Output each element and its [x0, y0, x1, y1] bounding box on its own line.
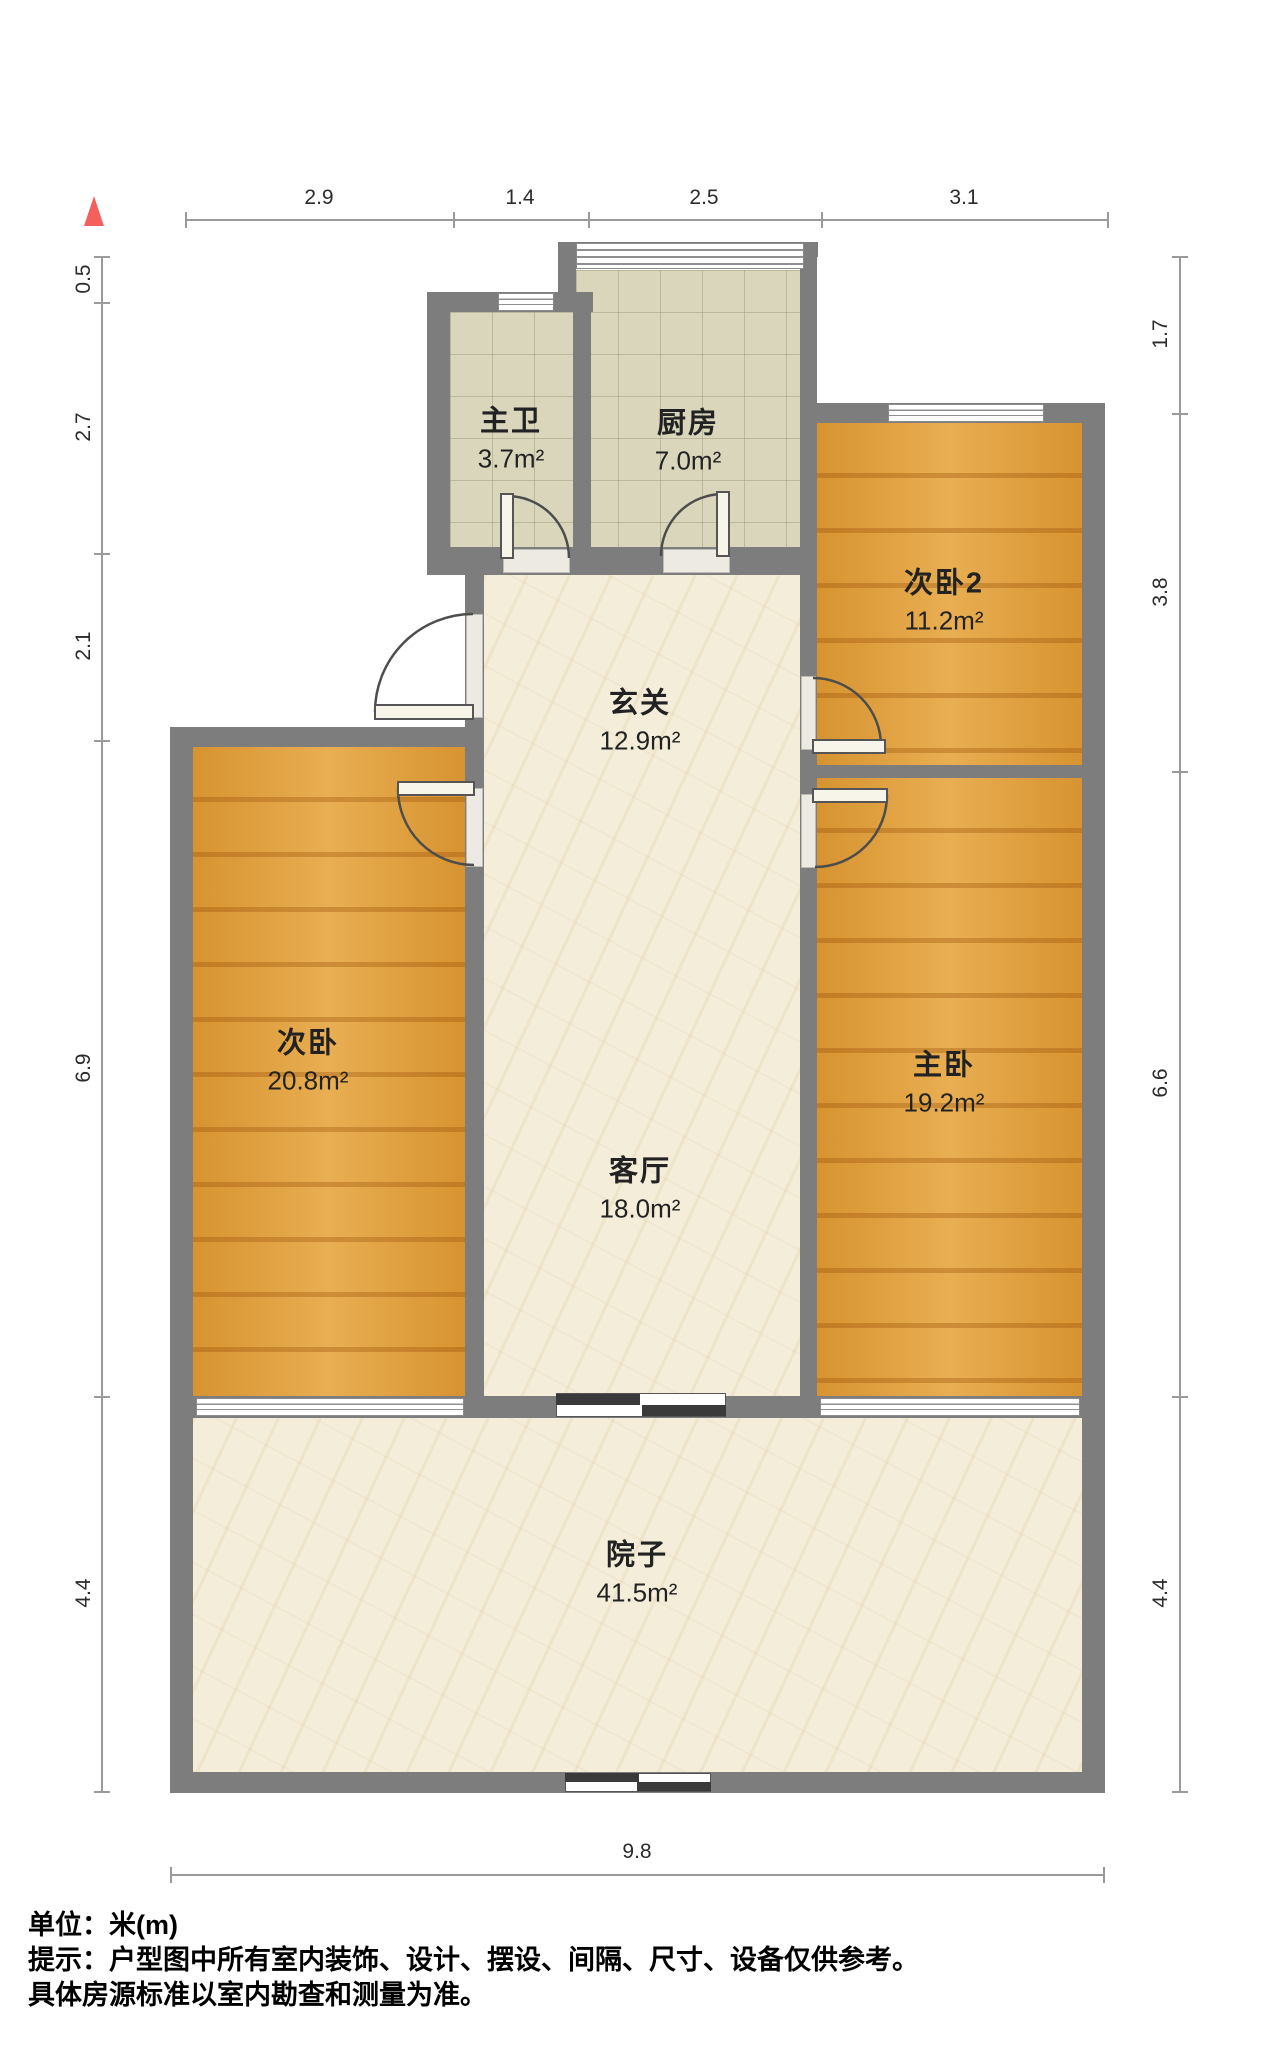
dim-tick — [1172, 256, 1188, 258]
dim-tick — [1172, 1791, 1188, 1793]
dim-line-top — [185, 219, 1109, 221]
room-label-bedroom: 次卧 20.8m² — [268, 1020, 349, 1097]
room-name: 次卧2 — [904, 560, 984, 602]
room-area: 20.8m² — [268, 1066, 349, 1097]
kitchen-bay-window — [576, 243, 804, 269]
dim-line-right — [1179, 256, 1181, 1793]
dim-tick — [821, 212, 823, 228]
courtyard-gate-panel — [565, 1773, 639, 1782]
dim-value-bottom: 9.8 — [622, 1840, 651, 1864]
entrance-door-opening — [466, 614, 483, 718]
dim-tick — [94, 256, 110, 258]
dim-tick — [185, 212, 187, 228]
dim-value-right: 6.6 — [1149, 1068, 1173, 1097]
dim-value-right: 3.8 — [1149, 577, 1173, 606]
wall-bath-kitchen — [573, 292, 591, 575]
dim-value-top: 1.4 — [505, 186, 534, 210]
dim-tick — [94, 740, 110, 742]
dim-value-left: 2.7 — [72, 412, 96, 441]
room-name: 院子 — [597, 1532, 678, 1574]
dim-tick — [1103, 1867, 1105, 1883]
bedroom-door-opening — [466, 788, 483, 867]
dim-tick — [1172, 413, 1188, 415]
kitchen-door-opening — [663, 549, 730, 573]
bedroom2-door-opening — [801, 676, 816, 750]
room-label-kitchen: 厨房 7.0m² — [655, 400, 721, 477]
dim-tick — [94, 1791, 110, 1793]
wall-bath-left — [427, 292, 450, 575]
master-door-opening — [801, 794, 816, 868]
dim-line-left — [101, 256, 103, 1793]
dim-tick — [94, 302, 110, 304]
dim-value-top: 2.5 — [689, 186, 718, 210]
dim-value-top: 2.9 — [304, 186, 333, 210]
wall-east-outer — [1082, 403, 1105, 1793]
dim-line-bottom — [170, 1874, 1105, 1876]
room-name: 主卫 — [478, 398, 544, 440]
room-area: 19.2m² — [904, 1088, 985, 1119]
room-label-hallway: 玄关 12.9m² — [600, 680, 681, 757]
room-name: 主卧 — [904, 1042, 985, 1084]
floor-plan-page: 主卫 3.7m² 厨房 7.0m² 次卧2 11.2m² 玄关 12.9m² 次… — [0, 0, 1275, 2048]
wall-bedroom2-master — [817, 765, 1082, 778]
room-label-courtyard: 院子 41.5m² — [597, 1532, 678, 1609]
wall-bedroom-top — [170, 727, 484, 747]
dim-value-left: 2.1 — [72, 631, 96, 660]
bath-window — [498, 293, 554, 311]
room-label-master-bath: 主卫 3.7m² — [478, 398, 544, 475]
dim-tick — [588, 212, 590, 228]
footer-tip-line1: 提示：户型图中所有室内装饰、设计、摆设、间隔、尺寸、设备仅供参考。 — [28, 1943, 919, 1978]
bedroom2-window — [888, 404, 1044, 422]
wall-bath-kitchen-bottom — [427, 547, 817, 575]
dim-tick — [453, 212, 455, 228]
room-name: 次卧 — [268, 1020, 349, 1062]
dim-tick — [170, 1867, 172, 1883]
bedroom-south-window — [196, 1398, 464, 1416]
dim-value-left: 0.5 — [72, 264, 96, 293]
room-area: 3.7m² — [478, 444, 544, 475]
courtyard-gate-panel — [637, 1782, 711, 1791]
dim-value-top: 3.1 — [949, 186, 978, 210]
dim-tick — [1172, 771, 1188, 773]
dim-value-right: 4.4 — [1149, 1578, 1173, 1607]
room-name: 客厅 — [600, 1148, 681, 1190]
bath-door-opening — [503, 549, 570, 573]
room-label-living-room: 客厅 18.0m² — [600, 1148, 681, 1225]
room-label-master-bedroom: 主卧 19.2m² — [904, 1042, 985, 1119]
dim-value-right: 1.7 — [1149, 319, 1173, 348]
living-sliding-door-panel — [556, 1394, 640, 1405]
living-sliding-door-panel — [642, 1405, 726, 1416]
room-area: 12.9m² — [600, 726, 681, 757]
dim-tick — [1107, 212, 1109, 228]
room-area: 7.0m² — [655, 446, 721, 477]
room-name: 玄关 — [600, 680, 681, 722]
master-south-window — [820, 1398, 1080, 1416]
room-area: 41.5m² — [597, 1578, 678, 1609]
footer-notes: 单位：米(m) 提示：户型图中所有室内装饰、设计、摆设、间隔、尺寸、设备仅供参考… — [28, 1908, 919, 2013]
dim-tick — [94, 1396, 110, 1398]
north-arrow-icon — [84, 196, 104, 226]
room-area: 18.0m² — [600, 1194, 681, 1225]
room-label-bedroom2: 次卧2 11.2m² — [904, 560, 984, 637]
wall-west-outer — [170, 727, 193, 1793]
footer-tip-line2: 具体房源标准以室内勘查和测量为准。 — [28, 1978, 919, 2013]
room-name: 厨房 — [655, 400, 721, 442]
footer-unit-line: 单位：米(m) — [28, 1908, 919, 1943]
dim-tick — [94, 553, 110, 555]
dim-tick — [1172, 1396, 1188, 1398]
dim-value-left: 6.9 — [72, 1053, 96, 1082]
dim-value-left: 4.4 — [72, 1578, 96, 1607]
room-area: 11.2m² — [904, 606, 984, 637]
